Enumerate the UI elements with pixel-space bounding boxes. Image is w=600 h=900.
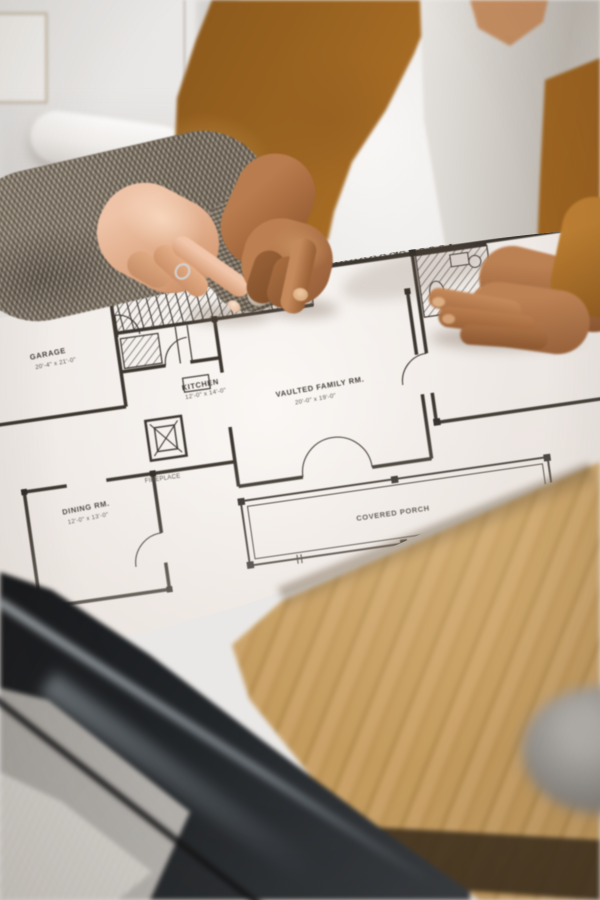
resting-hand-nail-2: [442, 314, 455, 324]
right-person-resting-arm: [0, 0, 600, 900]
photo-scene: GARAGE 20'-4" x 21'-0" KITCHEN 12'-0" x …: [0, 0, 600, 900]
resting-hand-nail-1: [432, 297, 445, 307]
